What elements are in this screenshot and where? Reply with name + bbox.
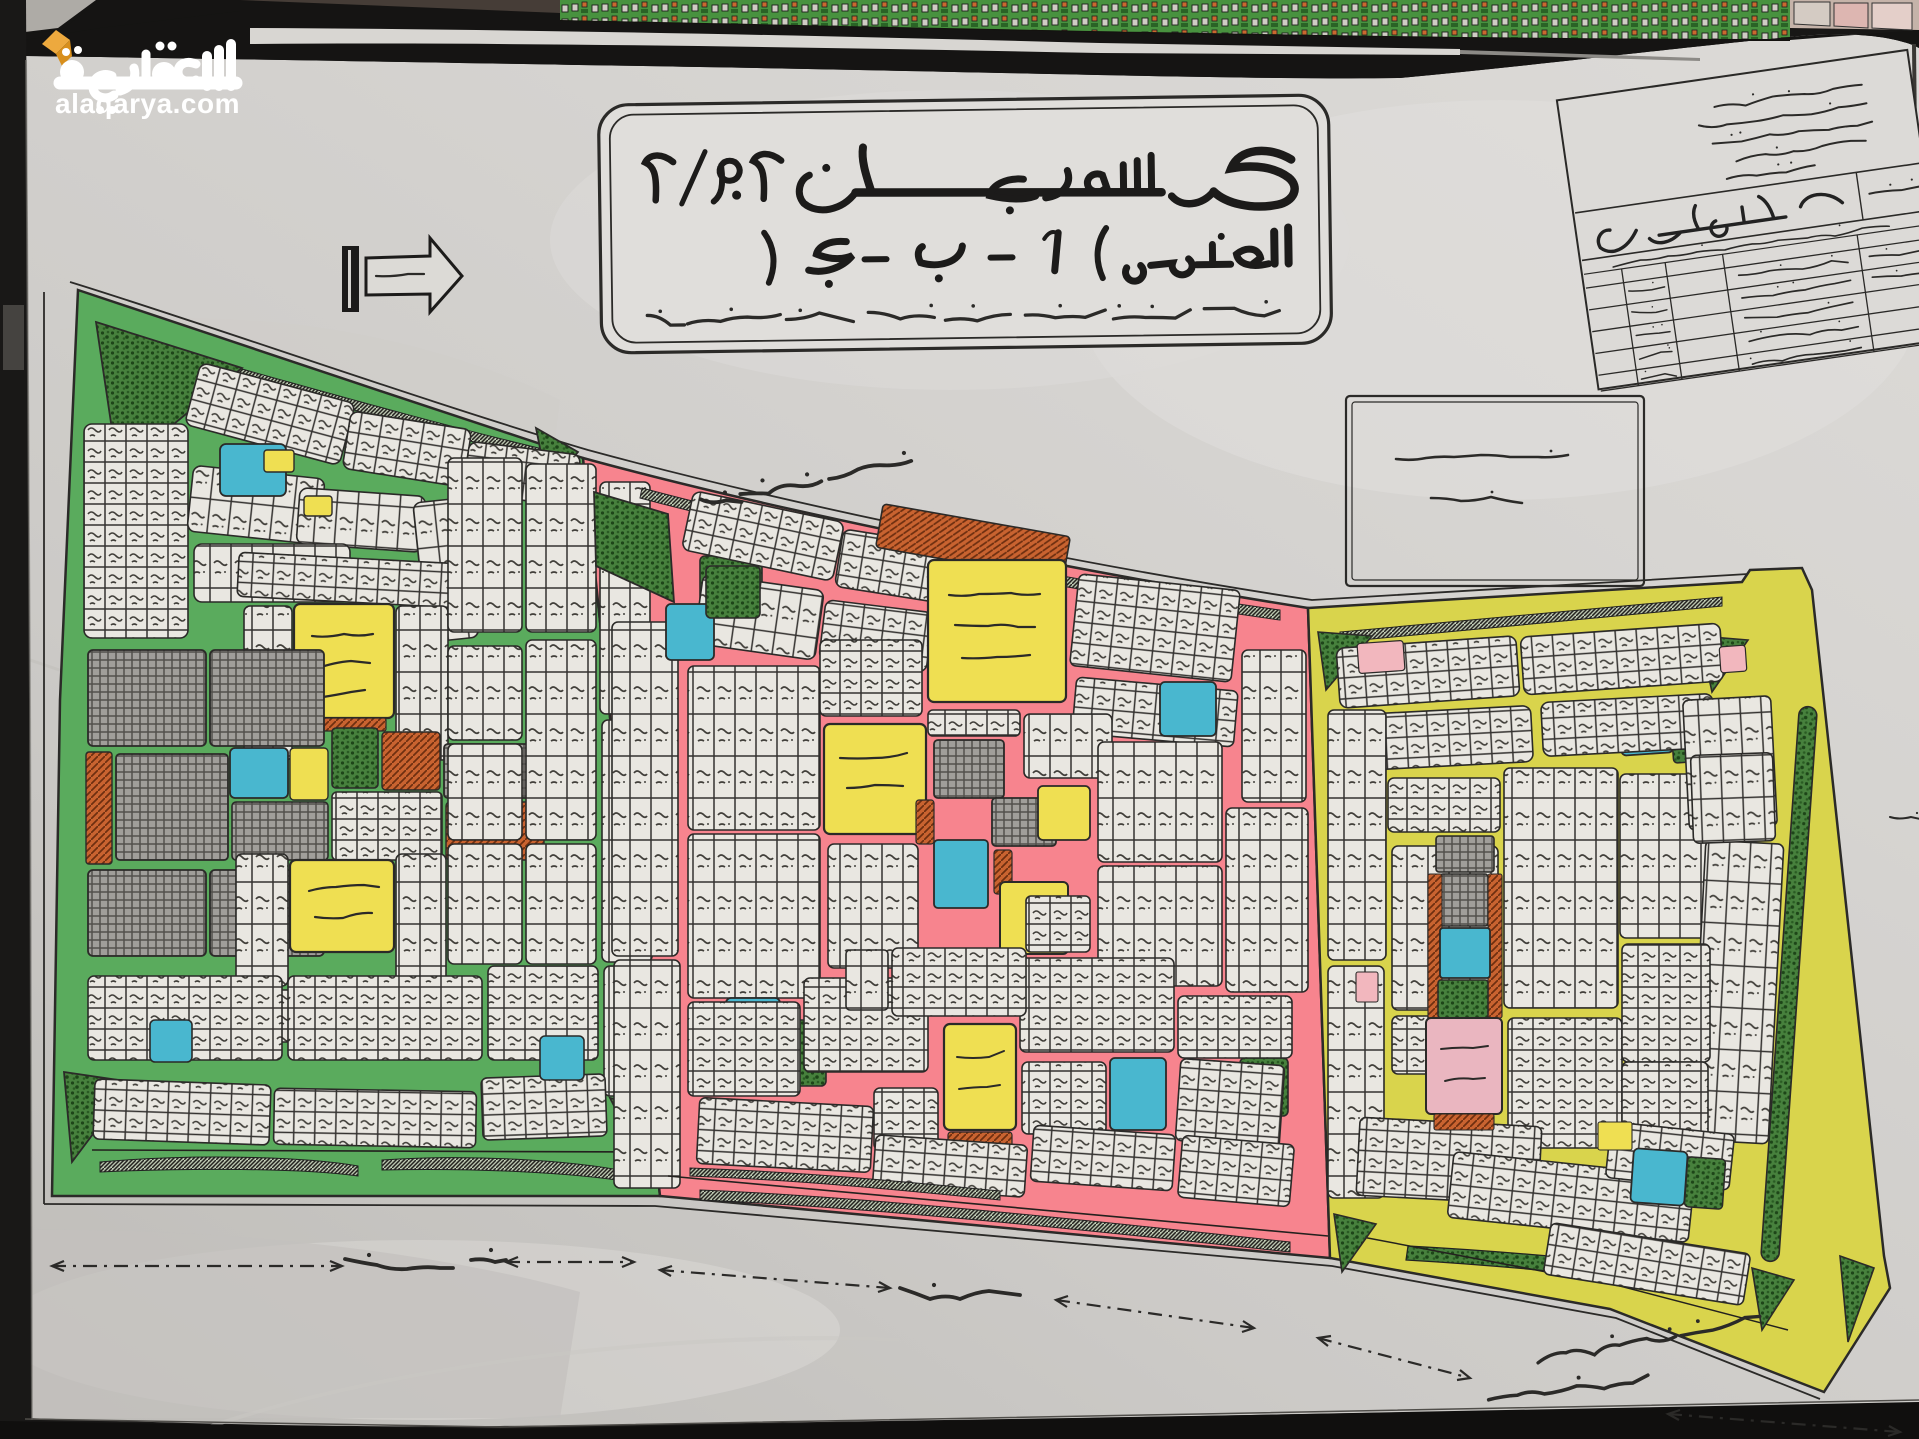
svg-text:alaqarya.com: alaqarya.com: [55, 88, 240, 119]
